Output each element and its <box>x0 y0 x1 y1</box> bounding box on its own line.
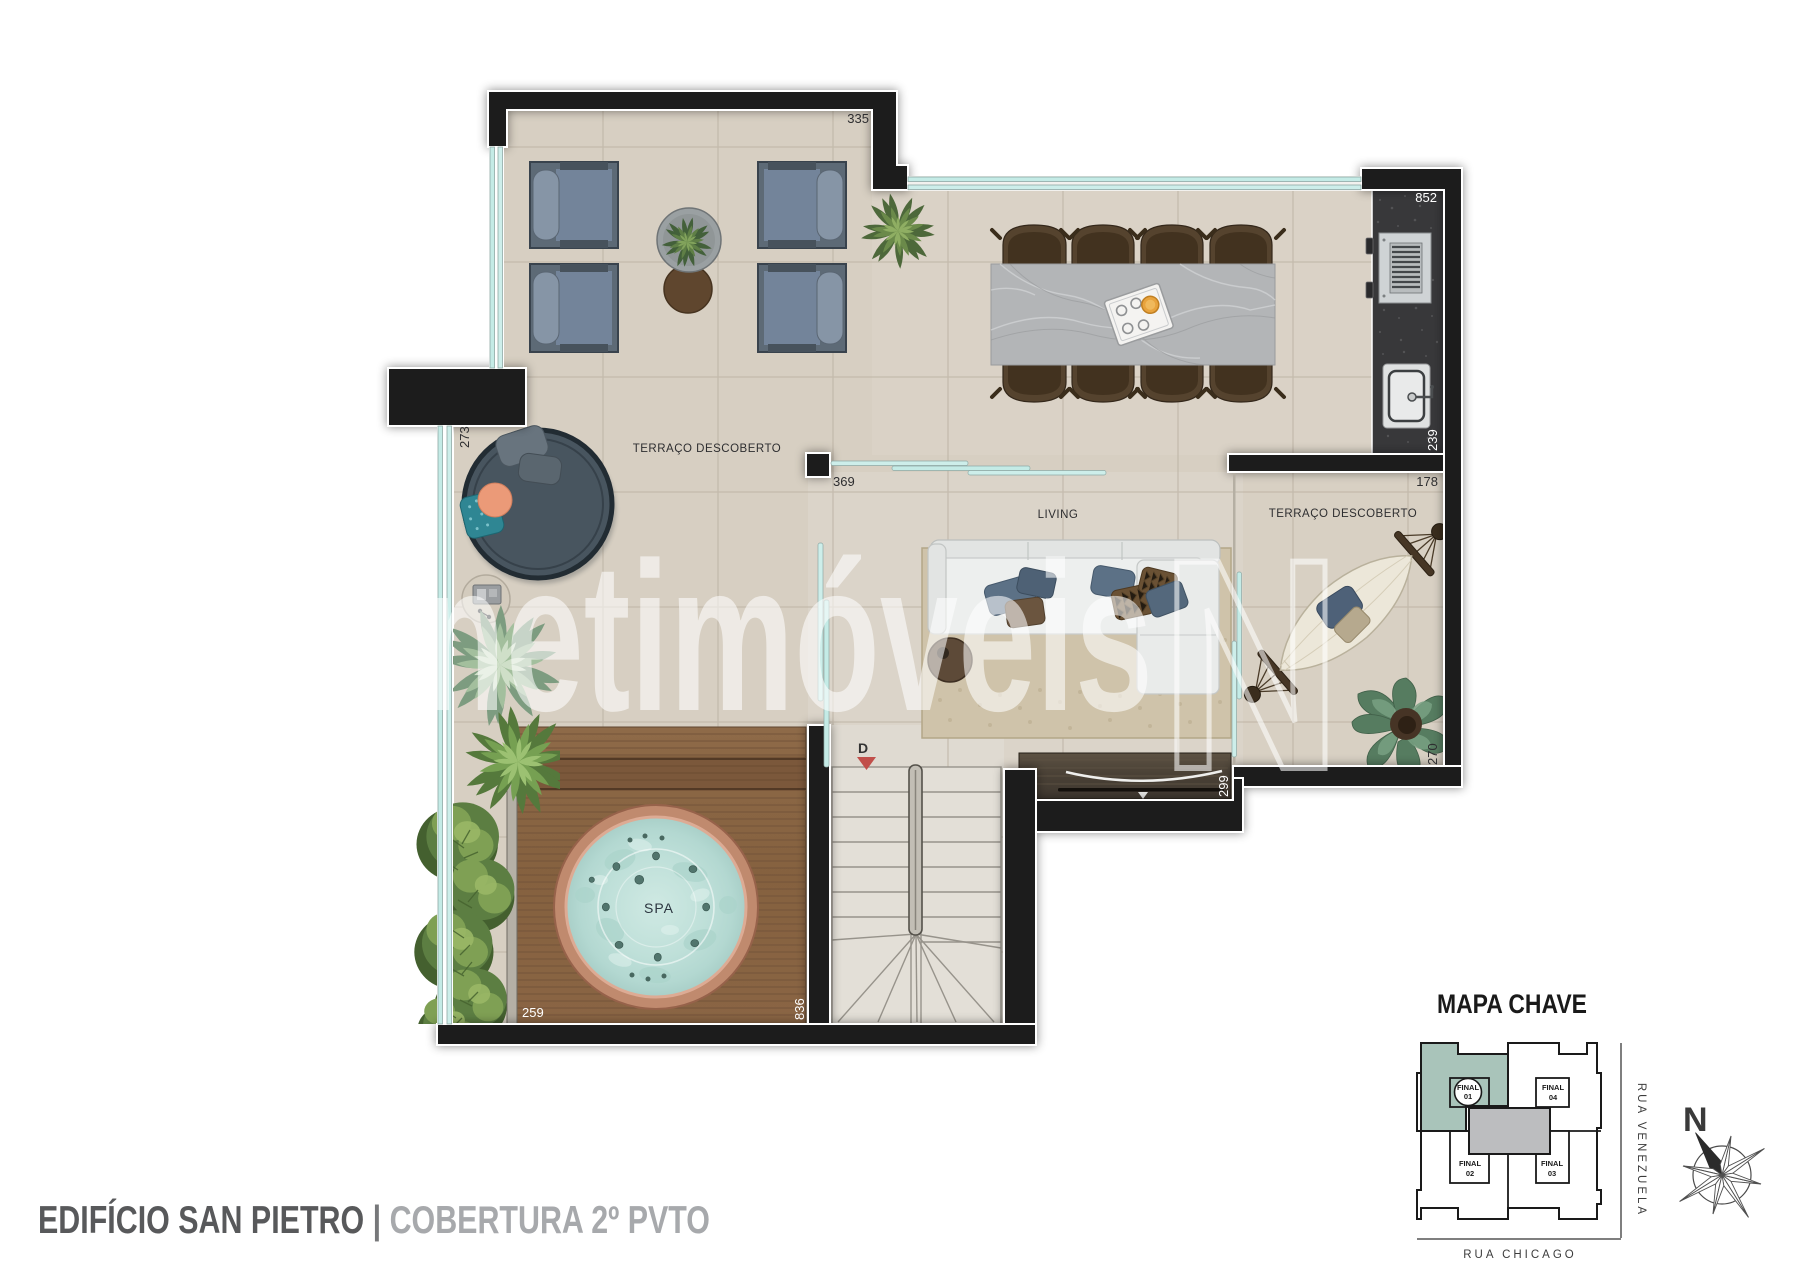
svg-text:N: N <box>1683 1101 1708 1139</box>
svg-text:N: N <box>1160 496 1342 832</box>
svg-text:03: 03 <box>1548 1169 1556 1178</box>
svg-text:EDIFÍCIO SAN PIETRO | COBERTUR: EDIFÍCIO SAN PIETRO | COBERTURA 2º PVTO <box>38 1197 710 1242</box>
svg-text:RUA VENEZUELA: RUA VENEZUELA <box>1635 1083 1647 1217</box>
svg-text:netimóveis: netimóveis <box>420 518 1153 755</box>
svg-text:369: 369 <box>833 474 855 489</box>
svg-text:273: 273 <box>457 426 472 448</box>
svg-text:836: 836 <box>792 998 807 1020</box>
svg-text:FINAL: FINAL <box>1542 1083 1564 1092</box>
svg-text:TERRAÇO DESCOBERTO: TERRAÇO DESCOBERTO <box>633 443 782 455</box>
svg-text:259: 259 <box>522 1005 544 1020</box>
svg-text:RUA CHICAGO: RUA CHICAGO <box>1463 1249 1577 1261</box>
svg-text:SPA: SPA <box>644 900 674 916</box>
svg-text:270: 270 <box>1425 743 1440 765</box>
svg-text:178: 178 <box>1416 474 1438 489</box>
svg-text:02: 02 <box>1466 1169 1474 1178</box>
svg-text:852: 852 <box>1415 190 1437 205</box>
svg-text:335: 335 <box>847 111 869 126</box>
svg-text:239: 239 <box>1425 429 1440 451</box>
svg-text:04: 04 <box>1549 1093 1558 1102</box>
svg-text:FINAL: FINAL <box>1459 1159 1481 1168</box>
svg-text:MAPA CHAVE: MAPA CHAVE <box>1437 989 1587 1019</box>
svg-text:01: 01 <box>1464 1092 1472 1101</box>
svg-text:FINAL: FINAL <box>1457 1083 1479 1092</box>
svg-text:FINAL: FINAL <box>1541 1159 1563 1168</box>
